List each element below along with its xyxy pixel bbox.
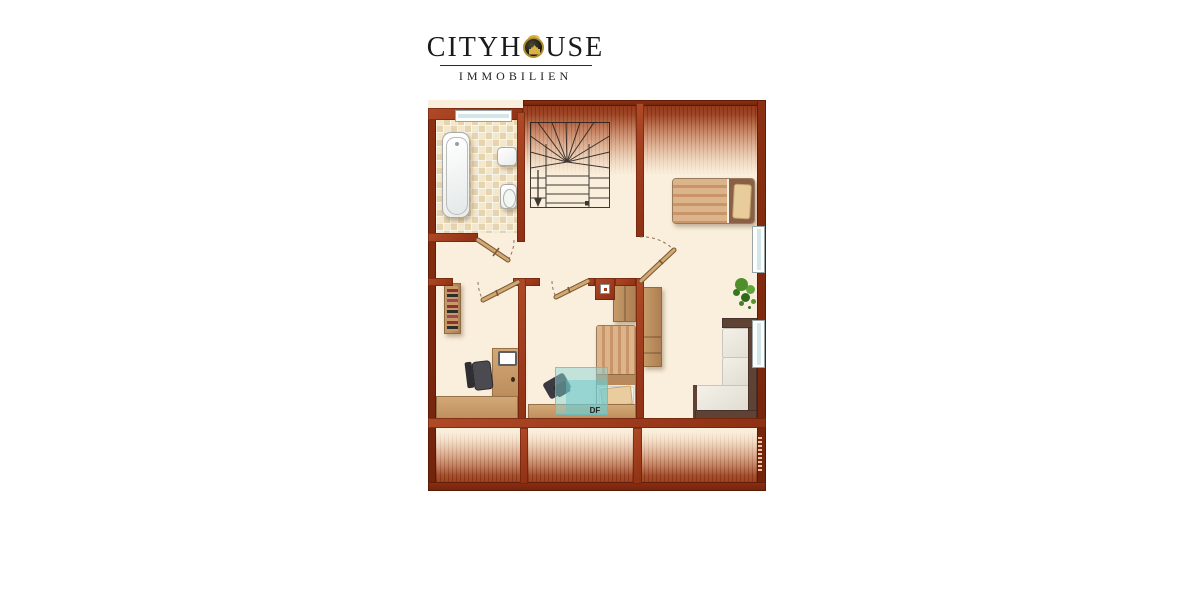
- tall-cabinet-icon: [643, 287, 662, 367]
- chimney-flue: [600, 284, 610, 294]
- desk-accessory: [511, 377, 515, 382]
- bathroom-window-glass: [458, 114, 509, 118]
- bookshelf-books: [447, 286, 458, 331]
- page: { "logo": { "title": "CITYHOUSE", "title…: [0, 0, 1200, 600]
- cabinet-shelf-line: [644, 336, 661, 338]
- wall-bedroom2-bedroom-large: [636, 278, 644, 428]
- bathtub-drain-icon: [455, 142, 459, 146]
- bathtub-inner: [446, 137, 468, 215]
- plant-icon: [725, 276, 757, 316]
- wardrobe-door-line: [624, 284, 626, 321]
- hall-wall-stub-left: [428, 278, 453, 286]
- bed-pillow: [732, 184, 752, 220]
- bed-duvet: [673, 179, 727, 223]
- plant-foliage: [735, 278, 748, 291]
- single-bed-icon: [672, 178, 755, 224]
- cabinet-shelf-line: [644, 352, 661, 354]
- hall-wall-chimney-right: [615, 278, 636, 286]
- roof-slope-hatch-bottom: [436, 428, 757, 484]
- bedroom-window-lower-glass: [757, 323, 761, 365]
- skylight-label: DF: [583, 406, 607, 416]
- outer-wall-left: [428, 108, 436, 491]
- logo-flourish-icon: [528, 35, 540, 43]
- bathroom-window: [455, 110, 512, 122]
- logo-subtitle: IMMOBILIEN: [413, 69, 618, 83]
- toilet-bowl: [503, 189, 516, 208]
- sofa-cushion: [722, 328, 750, 359]
- bedroom-window-upper: [752, 226, 765, 273]
- outer-wall-bottom: [428, 482, 766, 491]
- watermark: [758, 437, 762, 473]
- wall-office-bedroom2: [518, 278, 526, 428]
- castle-in-circle-icon: [523, 37, 544, 58]
- chimney-flue-dot: [604, 288, 607, 291]
- sofa-cushion: [696, 385, 750, 412]
- toilet-icon: [500, 184, 517, 209]
- roof-slope-hatch-top: [523, 100, 766, 180]
- floor-plan: DF: [428, 100, 766, 491]
- logo-title: CITYHUSE: [413, 33, 618, 63]
- wardrobe-icon: [613, 283, 636, 322]
- bedroom-window-lower: [752, 320, 765, 368]
- bedroom-window-upper-glass: [757, 229, 761, 270]
- bathroom-bottom-wall: [428, 233, 478, 242]
- outer-wall-right: [757, 100, 766, 491]
- knee-wall-divider-2: [633, 428, 642, 484]
- logo-divider: [440, 65, 592, 66]
- rooms-bottom-wall: [428, 418, 766, 428]
- bookshelf-icon: [444, 283, 461, 334]
- washbasin-icon: [497, 147, 517, 166]
- office-chair-icon: [466, 358, 494, 392]
- chimney-icon: [595, 278, 615, 300]
- laptop-icon: [498, 351, 517, 366]
- sofa-cushion: [722, 357, 750, 388]
- hall-wall-right: [588, 278, 595, 286]
- castle-silhouette-icon: [528, 44, 541, 55]
- logo: CITYHUSE IMMOBILIEN: [413, 33, 618, 83]
- bathtub-icon: [442, 132, 470, 218]
- outer-wall-top: [523, 100, 766, 106]
- chair-seat: [471, 360, 493, 391]
- knee-wall-divider-1: [520, 428, 528, 484]
- wall-stairs-bedroom: [636, 103, 644, 237]
- logo-title-part2: USE: [545, 32, 604, 63]
- corner-sofa-icon: [692, 318, 757, 423]
- logo-title-part1: CITYH: [427, 32, 523, 63]
- wall-bathroom-stairs: [517, 112, 525, 242]
